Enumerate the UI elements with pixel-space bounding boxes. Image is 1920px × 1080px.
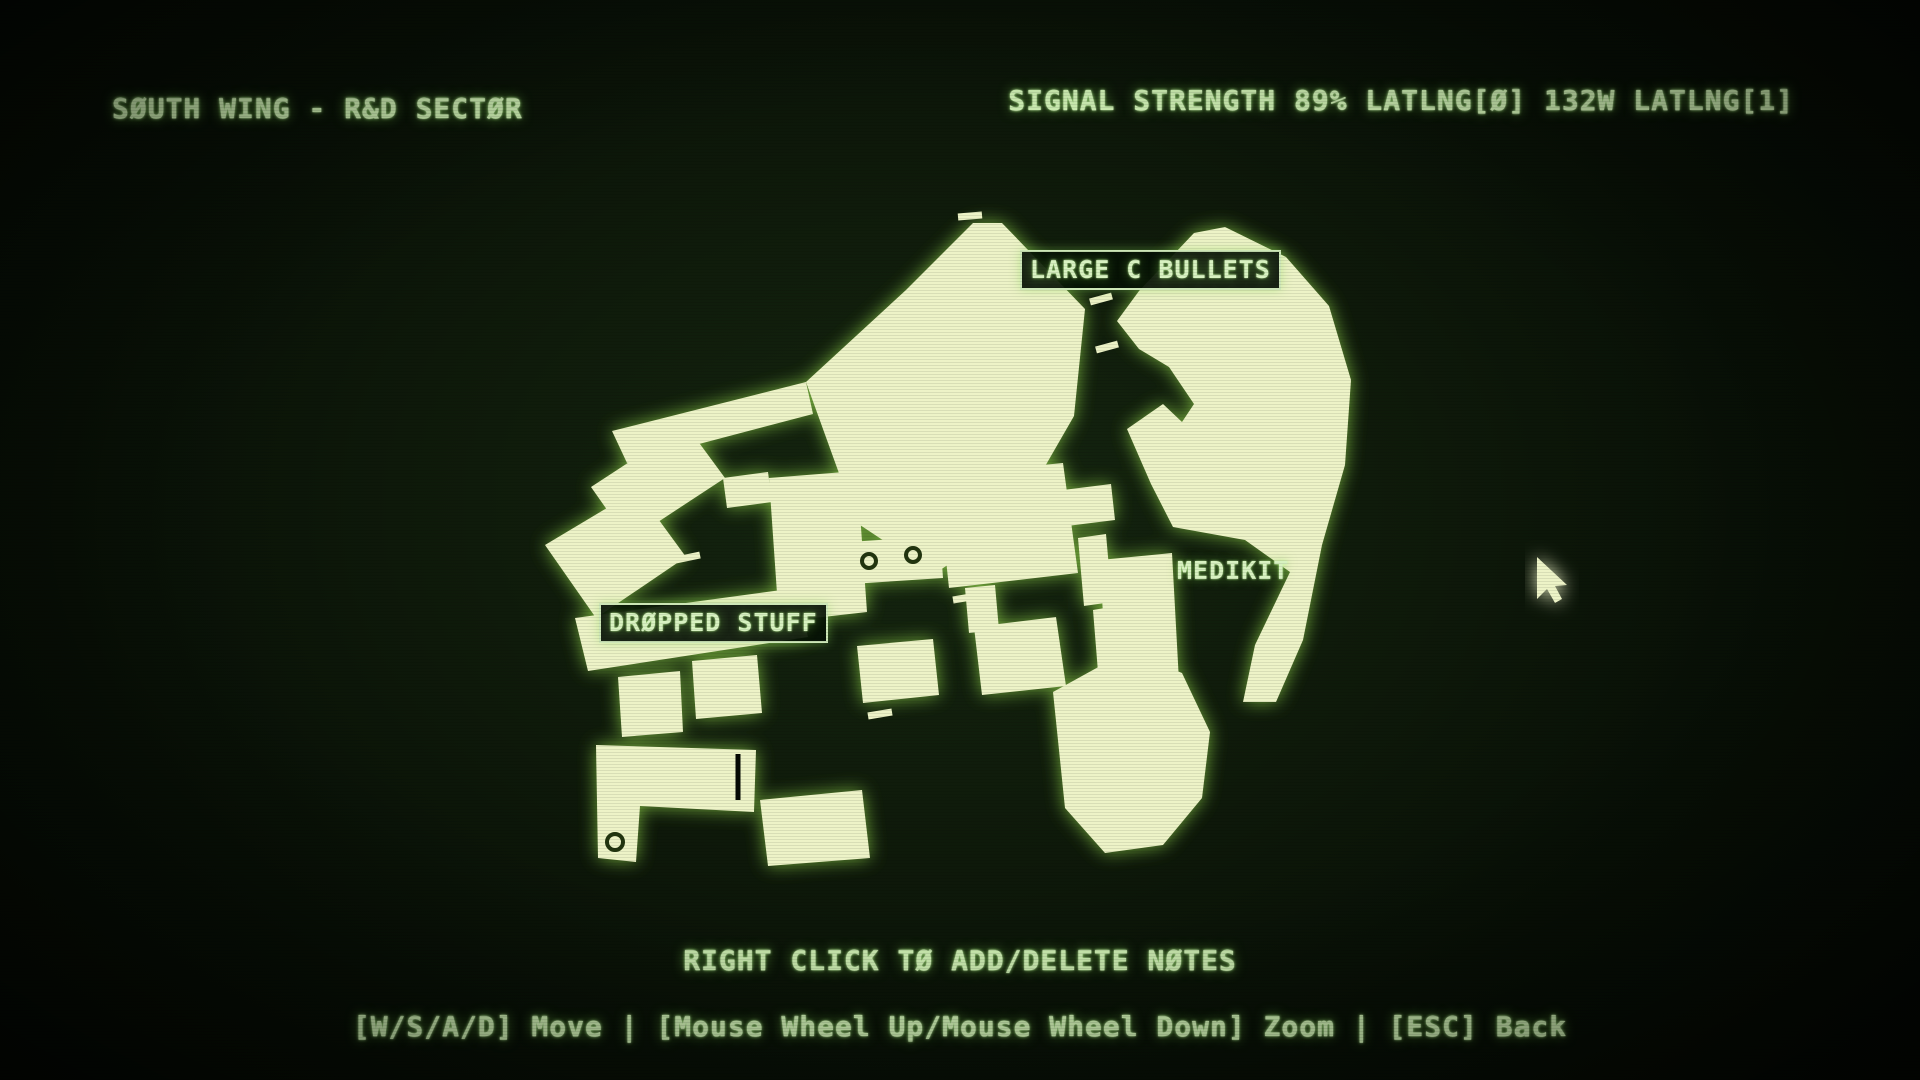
map-room-corridor-e — [1078, 534, 1112, 606]
door-dash — [953, 596, 977, 600]
map-room-room-c3 — [974, 617, 1066, 695]
door-dash — [1090, 296, 1112, 302]
map-room-hall-se — [1053, 659, 1210, 853]
map-room-room-s — [760, 790, 870, 866]
map-note-dropped-stuff[interactable]: DRØPPED STUFF — [599, 603, 828, 643]
map-room-room-sw2 — [692, 655, 762, 719]
map-room-bridge-c — [723, 472, 772, 508]
map-screen: SØUTH WING - R&D SECTØR SIGNAL STRENGTH … — [0, 0, 1920, 1080]
door-dash — [958, 215, 982, 217]
door-dash — [1096, 344, 1118, 350]
map-note-large-c-bullets[interactable]: LARGE C BULLETS — [1020, 250, 1281, 290]
local-map[interactable] — [0, 0, 1920, 1080]
door-dash — [868, 712, 892, 716]
map-room-room-sw1 — [618, 671, 683, 737]
map-room-hall-c — [937, 463, 1078, 588]
door-dash — [676, 555, 700, 560]
mouse-cursor — [1537, 557, 1567, 603]
map-room-bridge-e — [1063, 484, 1115, 526]
map-room-room-c4 — [857, 639, 939, 703]
map-room-corridor-s — [596, 745, 756, 862]
note-hint: RIGHT CLICK TØ ADD/DELETE NØTES — [0, 944, 1920, 977]
map-rooms-layer — [545, 223, 1351, 866]
map-note-medikit[interactable]: MEDIKIT — [1177, 558, 1289, 583]
controls-hint: [W/S/A/D] Move | [Mouse Wheel Up/Mouse W… — [0, 1010, 1920, 1043]
